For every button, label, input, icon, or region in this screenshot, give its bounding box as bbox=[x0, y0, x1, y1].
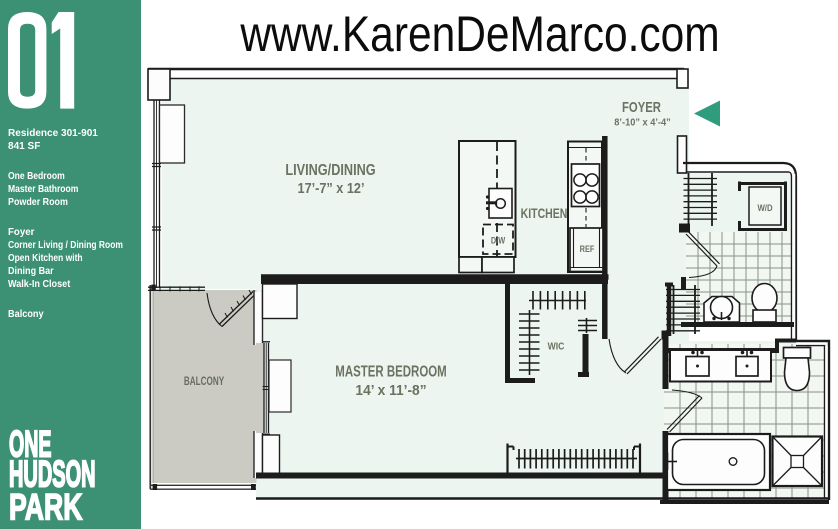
svg-text:Open Kitchen with: Open Kitchen with bbox=[8, 252, 83, 263]
svg-text:MASTER BEDROOM: MASTER BEDROOM bbox=[335, 363, 446, 380]
svg-text:FOYER: FOYER bbox=[622, 99, 661, 116]
svg-text:Dining Bar: Dining Bar bbox=[8, 266, 54, 278]
svg-text:BALCONY: BALCONY bbox=[184, 376, 225, 389]
svg-text:W/D: W/D bbox=[757, 202, 772, 213]
svg-text:Foyer: Foyer bbox=[8, 227, 35, 238]
svg-text:Corner Living / Dining Room: Corner Living / Dining Room bbox=[8, 239, 123, 250]
svg-text:WIC: WIC bbox=[548, 341, 565, 353]
svg-text:One Bedroom: One Bedroom bbox=[8, 170, 65, 181]
svg-text:LIVING/DINING: LIVING/DINING bbox=[285, 162, 375, 179]
svg-text:14’ x 11’-8”: 14’ x 11’-8” bbox=[355, 382, 426, 398]
svg-text:8’-10” x 4’-4”: 8’-10” x 4’-4” bbox=[614, 117, 670, 129]
svg-text:Master Bathroom: Master Bathroom bbox=[8, 183, 78, 194]
svg-text:Powder Room: Powder Room bbox=[8, 197, 68, 209]
svg-text:D/W: D/W bbox=[491, 236, 506, 246]
svg-text:PARK: PARK bbox=[9, 486, 82, 527]
svg-text:17’-7” x 12’: 17’-7” x 12’ bbox=[298, 180, 365, 196]
svg-text:REF: REF bbox=[580, 244, 595, 254]
svg-text:Balcony: Balcony bbox=[8, 309, 44, 320]
svg-text:Residence 301-901: Residence 301-901 bbox=[8, 128, 98, 139]
svg-text:841 SF: 841 SF bbox=[8, 141, 40, 152]
svg-text:www.KarenDeMarco.com: www.KarenDeMarco.com bbox=[239, 6, 719, 62]
svg-text:KITCHEN: KITCHEN bbox=[521, 206, 568, 222]
svg-text:Walk-In Closet: Walk-In Closet bbox=[8, 279, 71, 291]
